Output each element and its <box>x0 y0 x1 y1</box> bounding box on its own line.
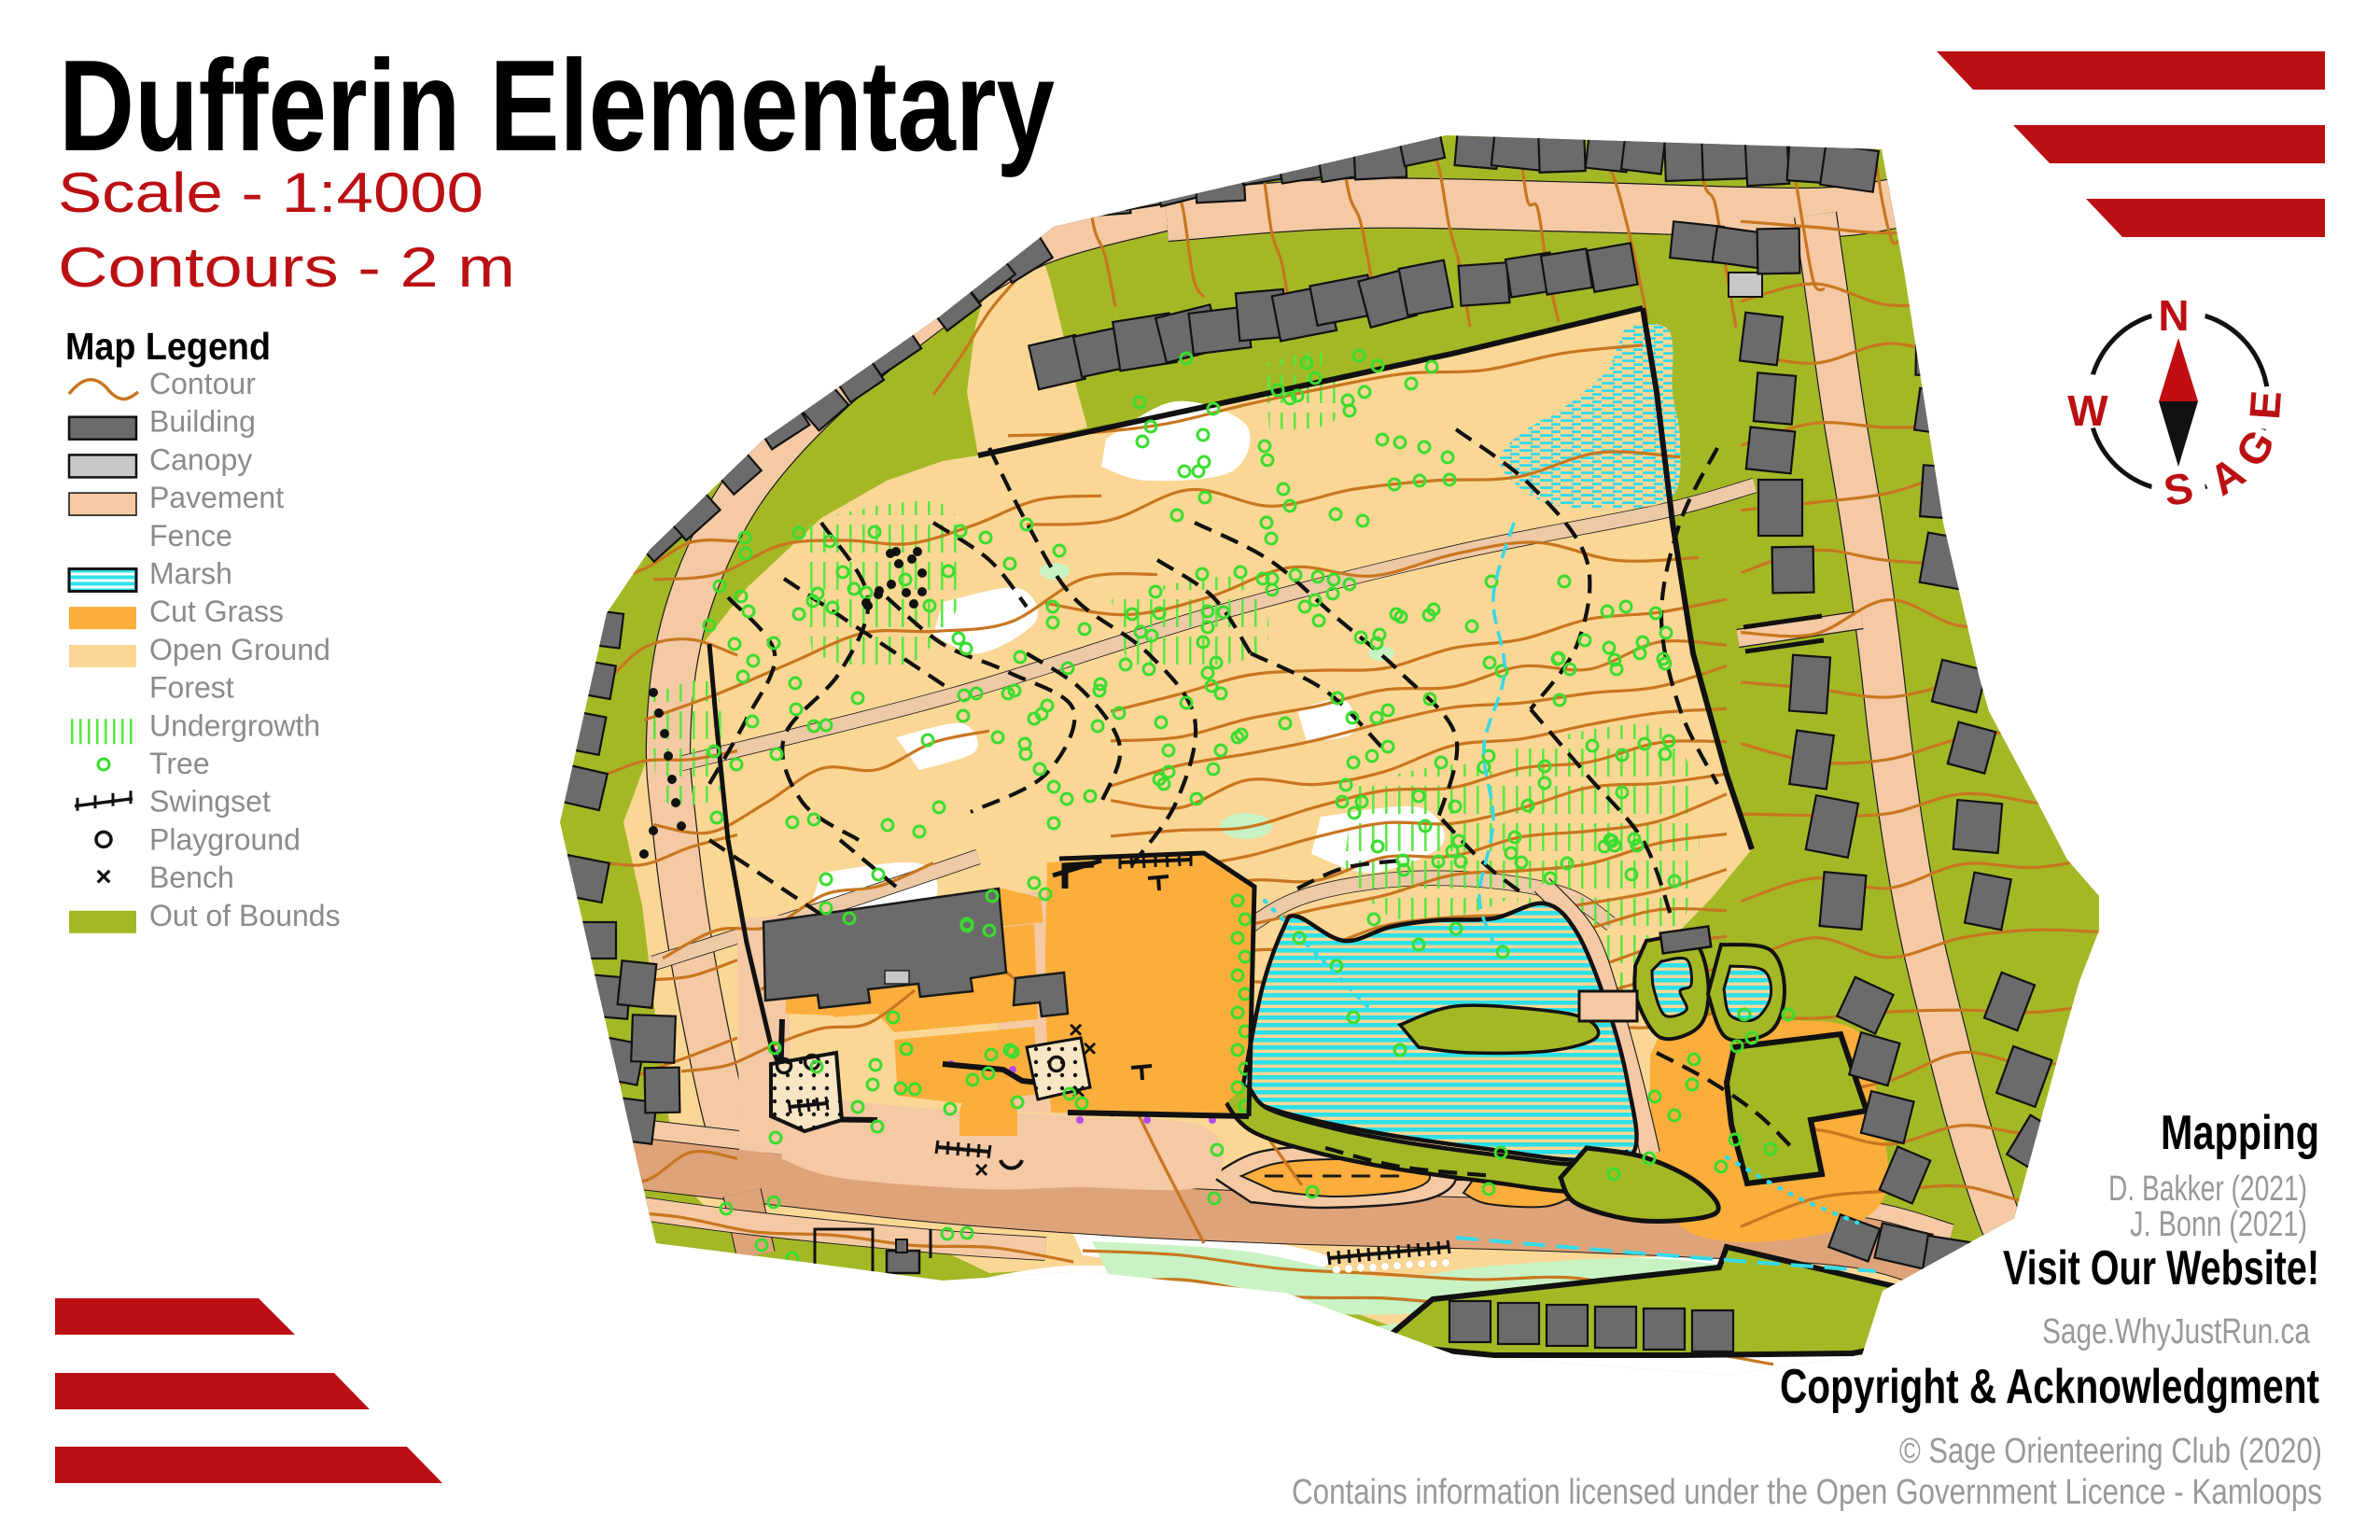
svg-text:Sage.WhyJustRun.ca: Sage.WhyJustRun.ca <box>2042 1312 2311 1351</box>
svg-text:Out of Bounds: Out of Bounds <box>149 899 341 932</box>
svg-text:Contains information licensed: Contains information licensed under the … <box>1292 1473 2322 1512</box>
svg-text:×: × <box>1069 1015 1083 1043</box>
svg-text:Scale - 1:4000: Scale - 1:4000 <box>58 161 483 224</box>
svg-text:D. Bakker (2021): D. Bakker (2021) <box>2108 1169 2307 1209</box>
svg-text:Open Ground: Open Ground <box>149 633 330 666</box>
svg-text:Contour: Contour <box>149 367 256 400</box>
svg-text:Tree: Tree <box>149 747 210 780</box>
svg-text:E: E <box>2240 389 2290 421</box>
svg-text:Fence: Fence <box>149 519 232 553</box>
svg-text:×: × <box>974 1155 988 1183</box>
svg-text:Undergrowth: Undergrowth <box>149 708 320 742</box>
svg-text:×: × <box>1083 1034 1097 1062</box>
svg-text:Map Legend: Map Legend <box>65 325 271 368</box>
svg-text:Forest: Forest <box>149 671 234 705</box>
svg-text:Building: Building <box>149 405 256 439</box>
svg-text:Copyright & Acknowledgment: Copyright & Acknowledgment <box>1780 1360 2319 1414</box>
svg-text:J. Bonn (2021): J. Bonn (2021) <box>2130 1205 2307 1244</box>
svg-text:×: × <box>95 861 112 892</box>
svg-text:Pavement: Pavement <box>149 481 284 514</box>
svg-text:N: N <box>2158 291 2189 340</box>
svg-text:Bench: Bench <box>149 861 234 894</box>
svg-text:Contours - 2 m: Contours - 2 m <box>58 236 515 299</box>
svg-text:© Sage Orienteering Club (2020: © Sage Orienteering Club (2020) <box>1899 1432 2322 1471</box>
svg-text:Mapping: Mapping <box>2161 1106 2319 1160</box>
svg-text:Dufferin Elementary: Dufferin Elementary <box>59 34 1055 178</box>
svg-text:Cut Grass: Cut Grass <box>149 595 284 628</box>
svg-text:W: W <box>2067 386 2108 435</box>
svg-text:Playground: Playground <box>149 822 301 856</box>
svg-text:Marsh: Marsh <box>149 557 232 591</box>
svg-text:Canopy: Canopy <box>149 442 252 476</box>
svg-text:Swingset: Swingset <box>149 785 271 819</box>
svg-text:Visit Our Website!: Visit Our Website! <box>2003 1241 2319 1295</box>
